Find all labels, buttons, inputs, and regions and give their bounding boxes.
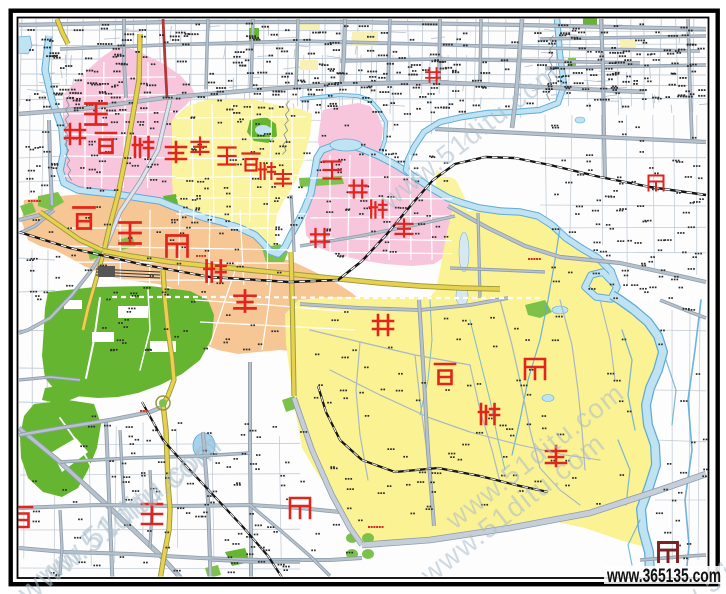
svg-text:www.365135.com: www.365135.com	[606, 566, 721, 587]
